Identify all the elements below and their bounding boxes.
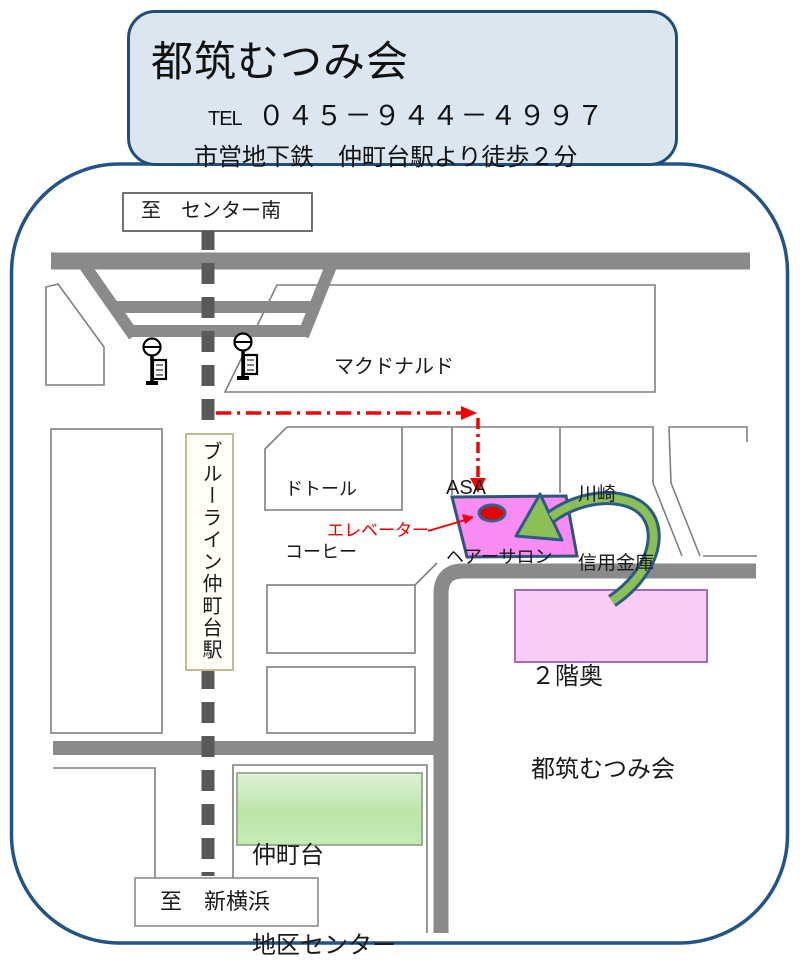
header-card: 都筑むつみ会 TEL ０４５－９４４－４９９７ 市営地下鉄 仲町台駅より徒歩２分 [127, 10, 678, 166]
building-label-kawasaki-shinkin: 川崎 信用金庫 [578, 437, 654, 621]
building-label-mcdonalds: マクドナルド [334, 356, 454, 379]
destination-line1: ２階奥 [531, 661, 675, 692]
building-left-mid [51, 429, 162, 733]
community-line2: 地区センター [252, 931, 396, 961]
building-label-asa-hair-salon: ASA ヘアーサロン [446, 431, 553, 615]
doutor-line1: ドトール [285, 479, 357, 500]
tel-label: TEL [208, 108, 242, 131]
org-title: 都筑むつみ会 [151, 28, 675, 89]
sign-to-shin-yokohama: 至 新横浜 [160, 889, 270, 914]
kawasaki-line1: 川崎 [578, 483, 654, 506]
community-line1: 仲町台 [252, 841, 396, 871]
elevator-label: エレベーター [327, 521, 429, 541]
building-mid-2 [267, 667, 415, 733]
asa-line2: ヘアーサロン [446, 546, 553, 569]
access-note: 市営地下鉄 仲町台駅より徒歩２分 [194, 137, 675, 172]
sign-to-center-minami: 至 センター南 [141, 200, 281, 223]
community-center-label: 仲町台 地区センター [252, 781, 396, 978]
destination-label: ２階奥 都筑むつみ会 [531, 599, 675, 847]
access-map-flyer: 至 センター南 マクドナルド ドトール コーヒー ASA ヘアーサロン 川崎 信… [0, 0, 800, 978]
kawasaki-line2: 信用金庫 [578, 552, 654, 575]
tel-row: TEL ０４５－９４４－４９９７ [208, 94, 675, 133]
station-label-blue-line-nakamachidai: ブルーライン仲町台駅 [189, 441, 231, 665]
tel-number: ０４５－９４４－４９９７ [258, 94, 606, 133]
asa-line1: ASA [446, 477, 553, 500]
doutor-line2: コーヒー [285, 542, 357, 563]
destination-line2: 都筑むつみ会 [531, 754, 675, 785]
